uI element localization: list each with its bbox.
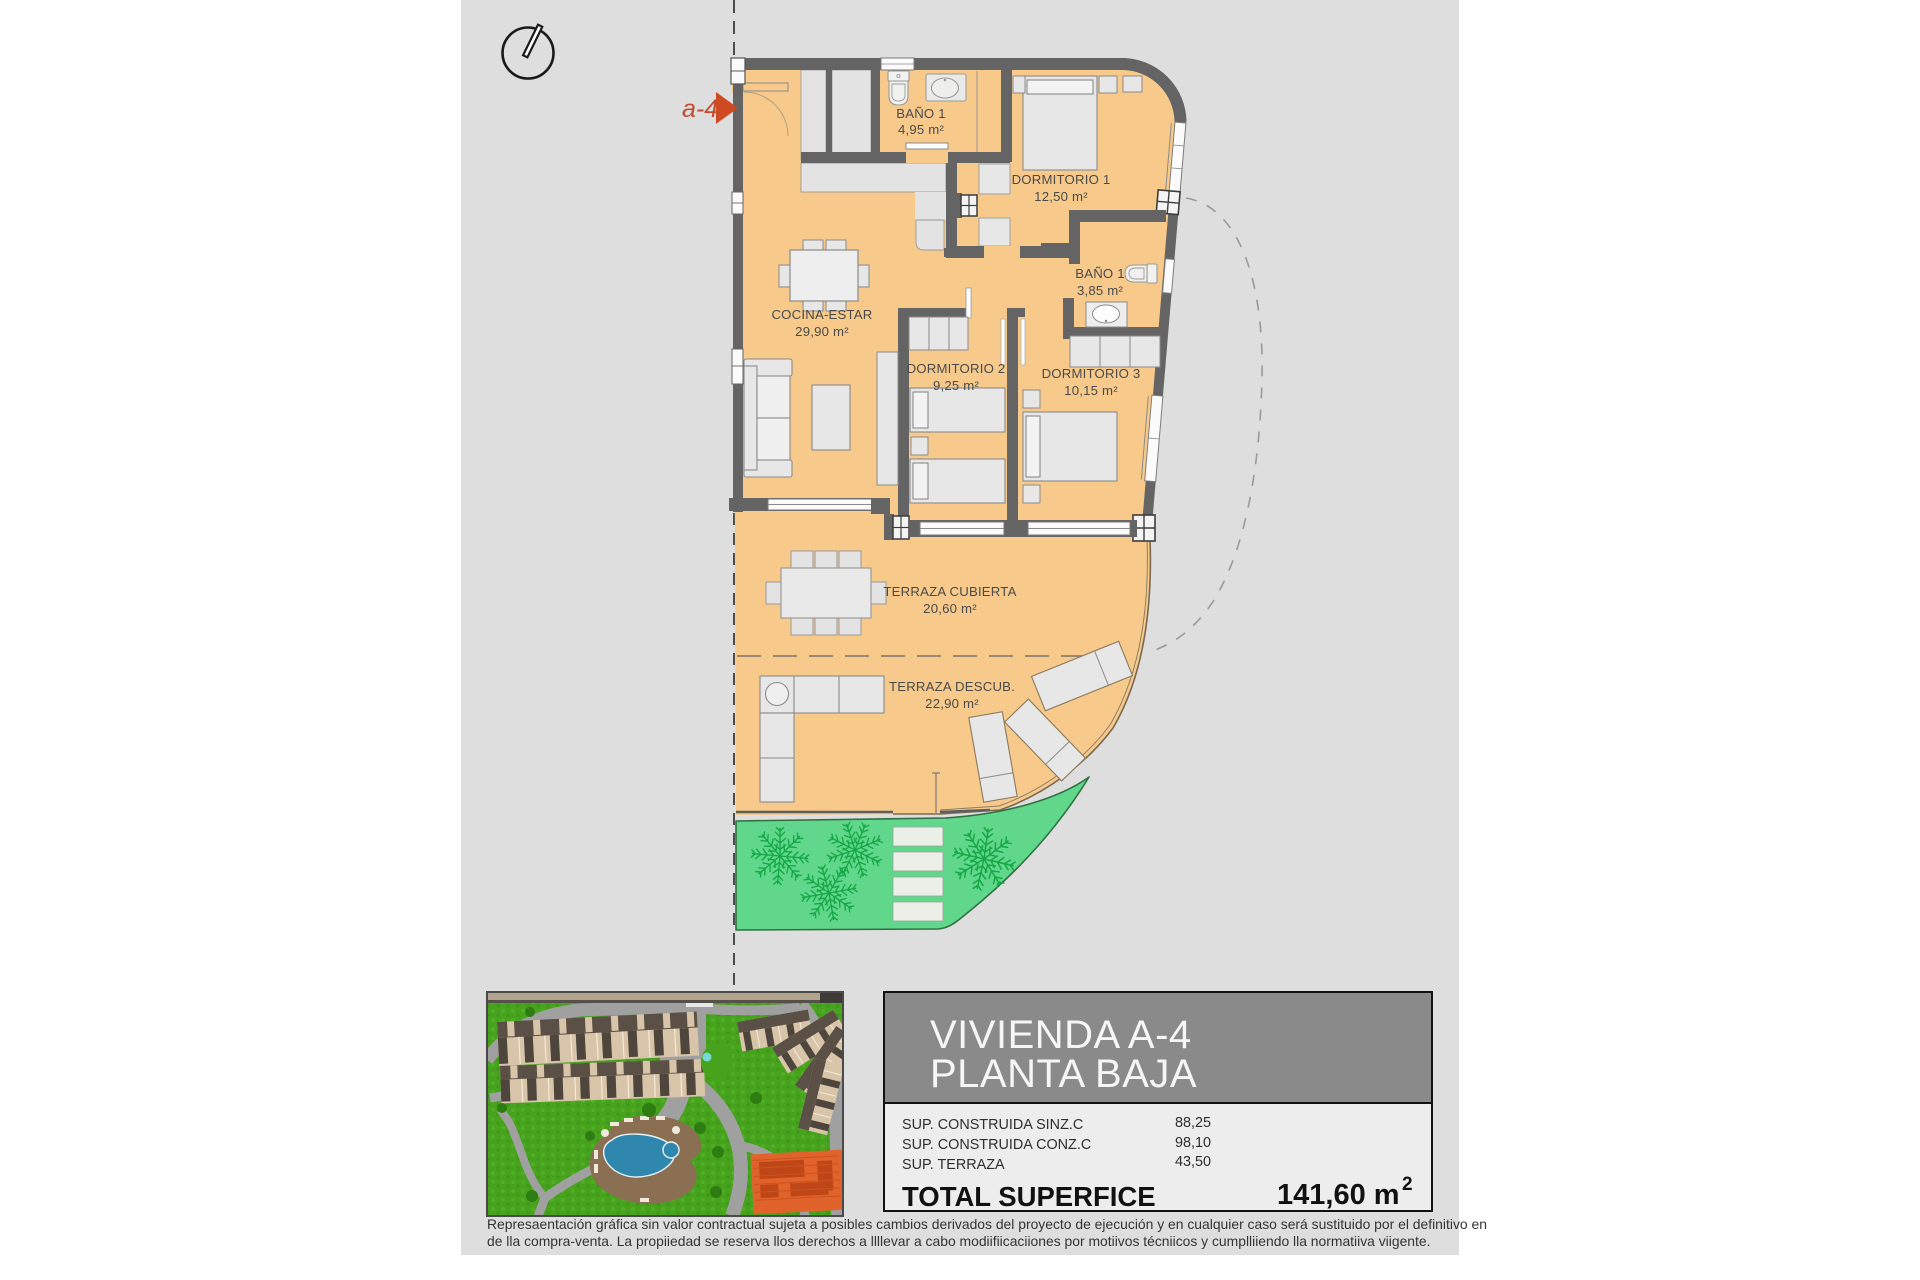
svg-text:SUP. CONSTRUIDA SINZ.C: SUP. CONSTRUIDA SINZ.C [902, 1117, 1083, 1133]
svg-text:2: 2 [1402, 1174, 1413, 1195]
svg-text:3,85 m²: 3,85 m² [1077, 283, 1124, 298]
svg-text:SUP. CONSTRUIDA CONZ.C: SUP. CONSTRUIDA CONZ.C [902, 1137, 1091, 1153]
svg-text:12,50 m²: 12,50 m² [1034, 189, 1088, 204]
svg-text:29,90 m²: 29,90 m² [795, 324, 849, 339]
svg-text:98,10: 98,10 [1175, 1135, 1211, 1151]
svg-text:Represaentación gráfica sin va: Represaentación gráfica sin valor contra… [487, 1216, 1487, 1232]
svg-text:COCINA-ESTAR: COCINA-ESTAR [771, 307, 872, 322]
svg-text:22,90 m²: 22,90 m² [925, 696, 979, 711]
svg-text:TOTAL SUPERFICE: TOTAL SUPERFICE [902, 1181, 1156, 1212]
svg-text:10,15 m²: 10,15 m² [1064, 383, 1118, 398]
svg-text:43,50: 43,50 [1175, 1154, 1211, 1170]
svg-text:141,60 m: 141,60 m [1277, 1179, 1400, 1211]
svg-text:BAÑO 1: BAÑO 1 [896, 106, 946, 121]
svg-text:a-4: a-4 [682, 95, 718, 123]
svg-text:DORMITORIO 2: DORMITORIO 2 [907, 361, 1006, 376]
svg-text:VIVIENDA A-4: VIVIENDA A-4 [930, 1013, 1192, 1057]
svg-text:88,25: 88,25 [1175, 1115, 1211, 1131]
svg-text:9,25 m²: 9,25 m² [933, 378, 980, 393]
svg-text:BAÑO 1: BAÑO 1 [1075, 266, 1125, 281]
svg-text:PLANTA BAJA: PLANTA BAJA [930, 1052, 1197, 1096]
svg-text:DORMITORIO 1: DORMITORIO 1 [1012, 172, 1111, 187]
svg-text:DORMITORIO 3: DORMITORIO 3 [1042, 366, 1141, 381]
svg-text:TERRAZA DESCUB.: TERRAZA DESCUB. [889, 679, 1015, 694]
svg-text:20,60 m²: 20,60 m² [923, 601, 977, 616]
svg-text:TERRAZA CUBIERTA: TERRAZA CUBIERTA [883, 584, 1016, 599]
svg-text:4,95 m²: 4,95 m² [898, 122, 945, 137]
svg-text:de lla compra-venta. La propii: de lla compra-venta. La propiiedad se re… [487, 1233, 1430, 1249]
svg-text:SUP. TERRAZA: SUP. TERRAZA [902, 1157, 1005, 1173]
